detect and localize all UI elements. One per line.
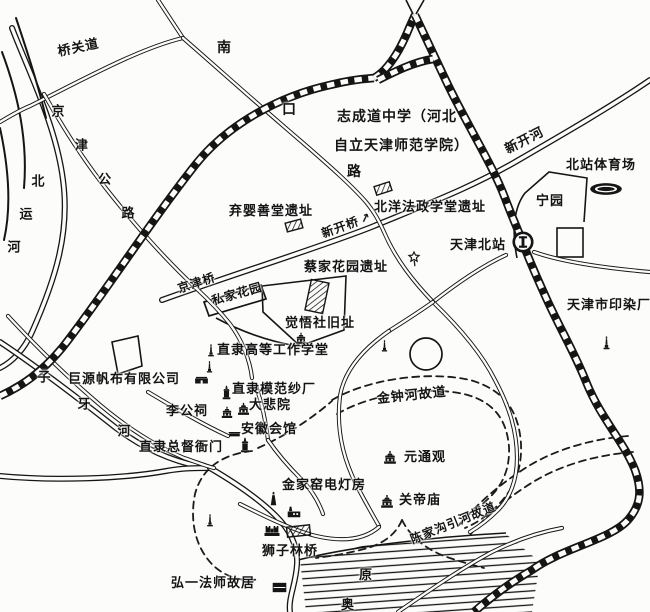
guandimiao-label: 关帝庙: [399, 494, 441, 507]
zhili-model-mill-label: 直隶模范纱厂: [232, 383, 316, 396]
ziya-river-char-1: 牙: [77, 399, 90, 412]
jingjin-highway-char-0: 京: [51, 106, 64, 119]
zhicheng-school-line1-label: 志成道中学（河北: [337, 110, 457, 124]
stadium-icon: [589, 180, 623, 198]
tianjin-dyeing-factory-label: 天津市印染厂: [567, 299, 650, 312]
governor-yamen-icon: [236, 436, 254, 454]
dabeiyuan-label: 大悲院: [249, 399, 291, 412]
nankou-road-char-2: 路: [347, 165, 361, 179]
yuan-char-label: 原: [359, 569, 373, 582]
power-plant-icon: [285, 502, 303, 520]
mill-block-outline: [112, 336, 142, 374]
zhili-governor-yamen-label: 直隶总督衙门: [139, 441, 223, 454]
yuantongguan-label: 元通观: [404, 451, 446, 464]
hongyi-residence-icon: [271, 579, 288, 596]
hongyi-residence-label: 弘一法师故居: [171, 577, 255, 590]
jingjin-highway-char-2: 公: [98, 174, 111, 187]
nankou-road-char-0: 南: [217, 41, 231, 55]
zhili-industrial-school-label: 直隶高等工作学堂: [217, 344, 329, 357]
dyeing-factory-icon: [598, 334, 615, 351]
li-gong-ci-label: 李公祠: [166, 405, 208, 418]
monument-icon-3: [202, 512, 218, 528]
zhicheng-school-line2-label: 自立天津师范学院）: [334, 139, 469, 153]
ligongci-icon: [219, 404, 235, 420]
jinjiayao-power-house-label: 金家窑电灯房: [282, 479, 366, 492]
station-icon: [512, 231, 534, 253]
beiyang-law-school-site-label: 北洋法政学堂遗址: [374, 201, 486, 214]
power-chimney-icon: [265, 490, 282, 507]
map: 桥关道南口路京津公路北运河子牙河志成道中学（河北自立天津师范学院）新开河北站体育…: [0, 0, 650, 612]
star-marker-icon: [405, 250, 423, 268]
shizilin-bridge-marker: [287, 525, 311, 537]
nankou-road-char-1: 口: [282, 103, 296, 117]
north-station-stadium-label: 北站体育场: [566, 159, 636, 172]
ningyuan-building: [557, 228, 583, 257]
qiying-charity-site-label: 弃婴善堂遗址: [229, 205, 313, 218]
juyuan-canvas-icon: [193, 369, 210, 386]
tianjin-north-station-label: 天津北站: [450, 239, 506, 252]
pond-outline: [410, 338, 442, 370]
wanghailou-castle-icon: [262, 518, 282, 538]
ziya-river-char-2: 河: [117, 426, 130, 439]
beiyun-river-char-0: 北: [31, 176, 44, 189]
anhui-huiguan-label: 安徽会馆: [241, 423, 297, 436]
jingjin-highway-char-3: 路: [121, 208, 134, 221]
beiyun-river-char-1: 运: [19, 209, 32, 222]
ao-char-label: 奥: [341, 599, 355, 612]
ziya-river-char-0: 子: [37, 372, 50, 385]
yuantongguan-icon: [381, 448, 399, 466]
ningyuan-park-label: 宁园: [536, 195, 564, 208]
jingjin-highway-char-1: 津: [75, 140, 88, 153]
shizilin-bridge-label: 狮子林桥: [262, 545, 318, 558]
map-geometry: [0, 0, 650, 612]
juyuan-canvas-co-label: 巨源帆布有限公司: [68, 373, 180, 386]
guandimiao-icon: [378, 492, 396, 510]
south-canal-line: [0, 468, 210, 479]
juewushe-site-label: 觉悟社旧址: [285, 317, 355, 330]
beiyun-river-char-2: 河: [7, 242, 20, 255]
monument-icon-4: [377, 338, 392, 353]
caijia-garden-site-label: 蔡家花园遗址: [304, 261, 388, 274]
